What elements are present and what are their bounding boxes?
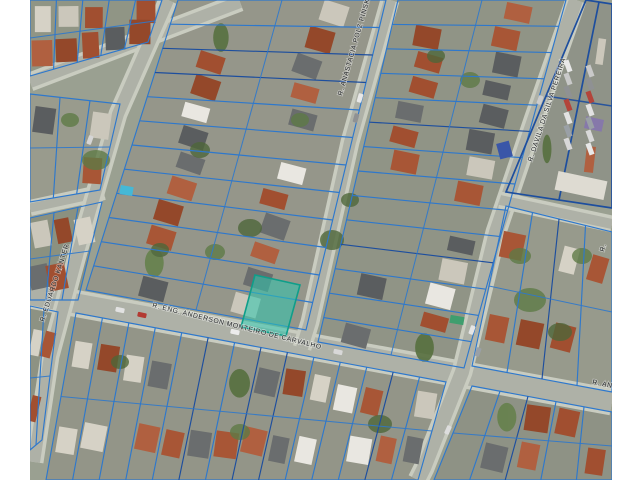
yard-tree — [497, 403, 516, 432]
building-roof — [282, 368, 306, 397]
tree — [427, 49, 445, 63]
building-roof — [414, 391, 437, 420]
letterbox-left — [0, 0, 30, 480]
map-viewport: R. ENG. ANDERSON MONTEIRO DE CARVALHOR. … — [0, 0, 640, 480]
building-roof — [187, 430, 212, 459]
building-roof — [524, 404, 552, 433]
tree — [572, 248, 592, 264]
yard-tree — [213, 23, 228, 52]
tree — [61, 113, 79, 127]
building-roof — [32, 40, 53, 66]
yard-tree — [543, 135, 552, 164]
tree — [291, 113, 309, 127]
building-roof — [105, 27, 125, 50]
building-roof — [32, 106, 56, 135]
building-roof — [55, 38, 77, 62]
building-roof — [82, 32, 100, 59]
tree — [548, 323, 572, 341]
building-roof — [35, 6, 51, 32]
building-roof — [584, 448, 605, 476]
tree — [509, 248, 531, 264]
building-roof — [58, 6, 78, 27]
tree — [230, 424, 250, 440]
building-roof — [346, 436, 372, 465]
building-roof — [85, 7, 103, 28]
letterbox-right — [612, 0, 640, 480]
yard-tree — [229, 369, 250, 398]
tree — [190, 142, 210, 158]
building-roof — [89, 111, 111, 139]
map-canvas[interactable]: R. ENG. ANDERSON MONTEIRO DE CARVALHOR. … — [0, 0, 640, 480]
yard-tree — [415, 333, 434, 362]
tree — [238, 219, 262, 237]
